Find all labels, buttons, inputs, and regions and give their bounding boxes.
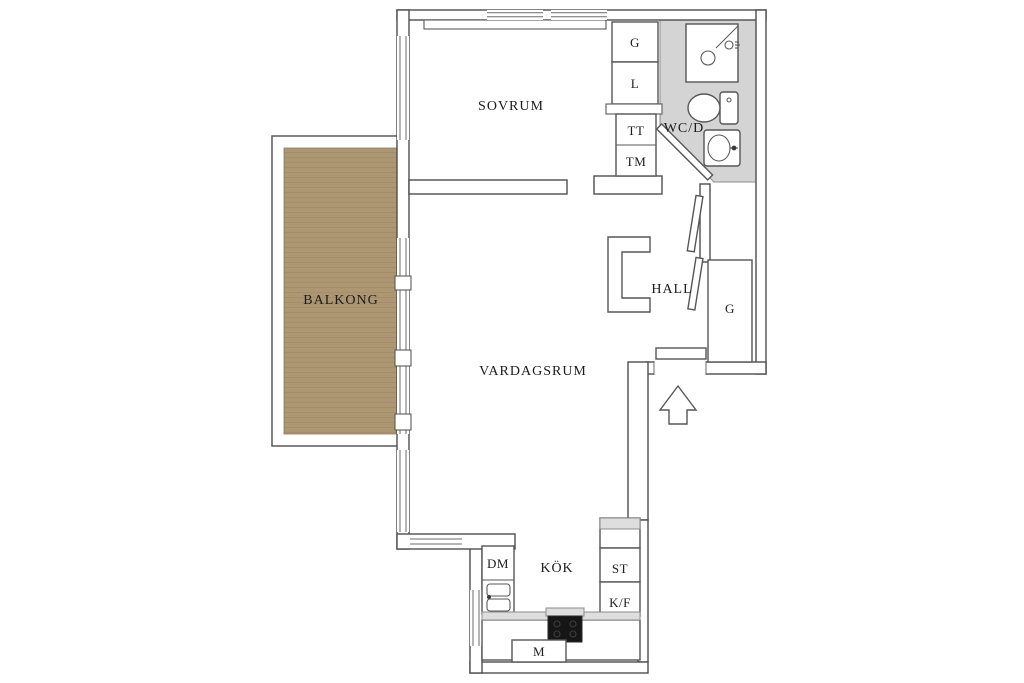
window-living-bottom	[410, 536, 462, 547]
closet-ledge	[606, 104, 662, 114]
entrance-arrow-icon	[660, 386, 696, 424]
balcony-door	[395, 238, 411, 434]
window-sill-top	[424, 20, 606, 29]
room-label-kitchen: KÖK	[540, 559, 573, 576]
entry-door-leaf	[656, 348, 706, 359]
shower-icon	[686, 24, 740, 82]
label-dm: DM	[487, 556, 509, 571]
door-mullion-1	[395, 276, 411, 290]
washbasin-icon	[704, 130, 740, 166]
window-kitchen-left	[470, 590, 482, 646]
room-label-wc: WC/D	[664, 121, 705, 136]
stove-hood	[546, 608, 584, 616]
window-top-2	[551, 10, 607, 20]
hall-wardrobe	[608, 237, 650, 312]
entry-opening	[654, 360, 706, 376]
wall-living-right	[628, 362, 648, 520]
label-tm: TM	[626, 154, 647, 169]
room-label-living: VARDAGSRUM	[479, 364, 587, 379]
label-closet-g: G	[630, 35, 640, 50]
label-st: ST	[612, 561, 628, 576]
label-hall-g: G	[725, 301, 735, 316]
room-label-hall: HALL	[651, 282, 692, 297]
window-living-left	[397, 450, 409, 532]
stove-icon	[548, 616, 582, 642]
floor-plan-drawing: SOVRUM WC/D HALL BALKONG VARDAGSRUM KÖK …	[0, 0, 1024, 683]
label-m: M	[533, 644, 545, 659]
room-label-sovrum: SOVRUM	[478, 99, 544, 114]
cabinet-top-counter	[600, 518, 640, 529]
wall-kitchen-bottom	[470, 662, 648, 673]
toilet-icon	[688, 92, 738, 124]
ledge-tt-tm	[594, 176, 662, 194]
room-label-balcony: BALKONG	[303, 293, 378, 308]
label-tt: TT	[628, 123, 645, 138]
door-mullion-3	[395, 414, 411, 430]
window-sovrum-left	[397, 36, 409, 140]
balcony-deck-stripes	[284, 148, 398, 434]
floor-plan-canvas: SOVRUM WC/D HALL BALKONG VARDAGSRUM KÖK …	[0, 0, 1024, 683]
door-mullion-2	[395, 350, 411, 366]
label-kf: K/F	[609, 595, 631, 610]
wall-sovrum-living	[409, 180, 567, 194]
window-top-1	[487, 10, 543, 20]
label-closet-l: L	[631, 76, 639, 91]
balcony	[272, 136, 408, 446]
wall-right	[756, 10, 766, 374]
